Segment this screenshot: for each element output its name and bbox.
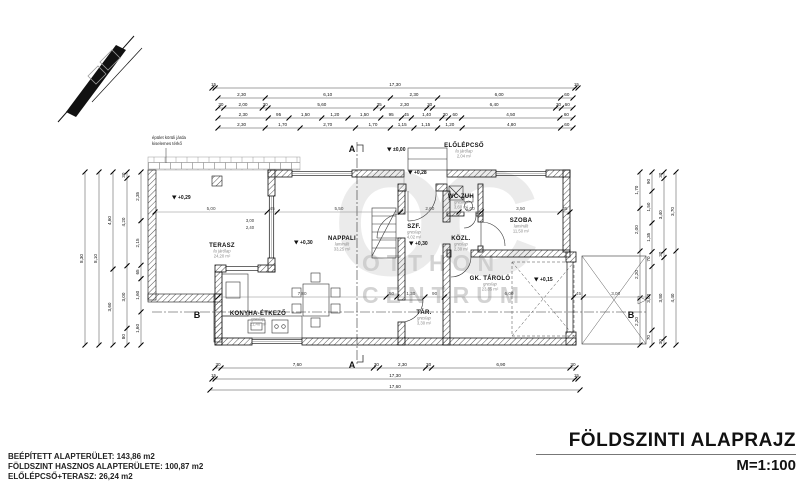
svg-text:30: 30 [374,362,380,367]
svg-text:80: 80 [121,334,126,340]
annotation-1: 2,40 [246,225,255,230]
room-label-3: SZF.greslap4,02 m² [407,224,422,240]
svg-text:1,70: 1,70 [634,185,639,194]
summary-line-1: BEÉPÍTETT ALAPTERÜLET: 143,86 m2 [8,452,203,462]
svg-text:70: 70 [646,335,651,341]
dim-chain-bottom-2: 1517,3015 [210,373,581,381]
dim-chain-inner-1: 5,00455,502,601,003,5045 [153,206,573,214]
svg-text:2,04 m²: 2,04 m² [457,154,472,159]
svg-text:95: 95 [276,112,282,117]
level-marker-3: +0,30 [409,241,428,247]
svg-text:65: 65 [135,269,140,275]
svg-text:4,60: 4,60 [107,216,112,225]
room-label-0: TERASZfa járólap24,20 m² [209,243,235,259]
svg-text:5,60: 5,60 [317,102,326,107]
svg-text:6,00: 6,00 [505,291,514,296]
svg-text:6,10: 6,10 [323,92,332,97]
svg-text:7,60: 7,60 [293,362,302,367]
svg-text:3,60: 3,60 [107,302,112,311]
svg-text:6,40: 6,40 [490,102,499,107]
svg-text:45: 45 [576,291,582,296]
svg-text:1,30: 1,30 [406,291,415,296]
dim-chain-bottom-3: 17,60 [208,384,583,392]
svg-text:8,10: 8,10 [93,254,98,263]
svg-text:+0,15: +0,15 [540,277,553,283]
svg-text:1,50: 1,50 [360,112,369,117]
svg-text:2,20: 2,20 [634,317,639,326]
svg-text:3,00: 3,00 [611,291,620,296]
dining-table [292,273,340,327]
garage-door-x [512,262,574,336]
svg-text:2,30: 2,30 [400,102,409,107]
driveway [582,256,646,344]
drawing-title: FÖLDSZINTI ALAPRAJZ [536,430,796,455]
dim-chain-left-4: 304,203,0080 [121,170,130,348]
section-letter-2: B [194,310,201,320]
svg-text:4,40: 4,40 [670,293,675,302]
svg-text:8,30: 8,30 [79,254,84,263]
level-marker-4: +0,29 [172,195,191,201]
svg-text:17,60: 17,60 [389,384,401,389]
svg-text:3,30 m²: 3,30 m² [417,321,432,326]
svg-text:15: 15 [211,373,217,378]
paving-strip [148,157,300,170]
drawing-scale: M=1:100 [536,457,796,474]
svg-text:70: 70 [646,256,651,262]
dim-chain-top-2: 2,306,102,306,0060 [216,92,576,100]
kitchen-fixtures [222,274,302,338]
svg-text:1,60: 1,60 [135,290,140,299]
svg-text:60: 60 [565,102,571,107]
svg-text:33,25 m²: 33,25 m² [334,247,351,252]
dim-chain-right-1: 1,702,002,202,20 [634,170,643,348]
section-letter-1: A [349,360,356,370]
svg-text:30: 30 [215,362,221,367]
room-label-6: SZOBAlaminált11,50 m² [510,218,533,234]
svg-text:1,60: 1,60 [135,324,140,333]
svg-text:11,50 m²: 11,50 m² [513,229,530,234]
section-letter-3: B [628,310,635,320]
room-label-9: ELŐLÉPCSŐfa járólap2,04 m² [444,141,484,159]
floor-plan-drawing: 1517,30152,306,102,306,0060302,00305,603… [0,0,800,492]
svg-text:+0,29: +0,29 [178,195,191,201]
dim-chain-top-3: 302,00305,60352,30306,403060 [216,102,576,110]
svg-text:kiselemes térkő: kiselemes térkő [152,141,182,146]
svg-text:3,00: 3,00 [121,292,126,301]
svg-text:2,70: 2,70 [323,122,332,127]
svg-text:21,40 m²: 21,40 m² [250,322,267,327]
room-label-1: NAPPALIlaminált33,25 m² [328,236,356,252]
svg-text:2,35: 2,35 [135,191,140,200]
annotation-0: 3,00 [246,218,255,223]
summary-line-2: FÖLDSZINT HASZNOS ALAPTERÜLETE: 100,87 m… [8,462,203,472]
svg-text:90: 90 [646,179,651,185]
level-marker-5: +0,15 [534,277,553,283]
svg-text:2,60: 2,60 [425,206,434,211]
svg-text:30: 30 [443,112,449,117]
svg-text:7,80: 7,80 [298,291,307,296]
svg-text:17,30: 17,30 [389,82,401,87]
svg-text:4,20: 4,20 [121,217,126,226]
dim-chain-left-1: 8,30 [79,170,88,348]
svg-text:2,30: 2,30 [237,122,246,127]
svg-text:30: 30 [426,362,432,367]
level-marker-2: +0,30 [294,240,313,246]
title-block: FÖLDSZINTI ALAPRAJZ M=1:100 [536,430,796,474]
svg-text:1,70: 1,70 [368,122,377,127]
svg-text:3,70: 3,70 [670,207,675,216]
svg-text:2,30: 2,30 [398,362,407,367]
summary-line-3: ELŐLÉPCSŐ+TERASZ: 26,24 m2 [8,472,203,482]
room-label-5: KÖZL.greslap2,30 m² [451,235,471,252]
dim-chain-right-4: 3,704,40 [670,170,679,348]
svg-text:15: 15 [211,82,217,87]
svg-text:1,20: 1,20 [445,122,454,127]
entry-step [408,148,447,170]
svg-text:2,00: 2,00 [634,225,639,234]
section-letter-0: A [349,144,356,154]
svg-text:2,30: 2,30 [237,92,246,97]
svg-text:30: 30 [658,172,663,178]
svg-text:2,30: 2,30 [239,112,248,117]
dim-chain-inner-2: 7,80501,30906,00453,00 [216,291,651,299]
svg-text:+0,30: +0,30 [415,241,428,247]
generated-annotations: 1517,30152,306,102,306,0060302,00305,603… [79,82,679,392]
svg-text:5,00: 5,00 [207,206,216,211]
svg-text:1,40: 1,40 [422,112,431,117]
svg-text:1,15: 1,15 [398,122,407,127]
svg-text:2,15: 2,15 [135,238,140,247]
svg-text:90: 90 [432,291,438,296]
svg-text:17,30: 17,30 [389,373,401,378]
svg-text:3,50: 3,50 [516,206,525,211]
svg-text:45: 45 [562,206,568,211]
svg-text:6,00: 6,00 [495,92,504,97]
svg-text:5,50: 5,50 [334,206,343,211]
svg-text:30: 30 [263,102,269,107]
svg-text:45: 45 [404,112,410,117]
svg-text:30: 30 [570,362,576,367]
svg-text:15: 15 [574,82,580,87]
svg-text:30: 30 [218,102,224,107]
dim-chain-left-2: 8,10 [93,170,102,348]
room-label-7: GK. TÁROLÓgreslap23,85 m² [470,274,511,292]
svg-text:1,35: 1,35 [646,232,651,241]
svg-text:2,20: 2,20 [634,270,639,279]
svg-text:35: 35 [377,102,383,107]
svg-text:30: 30 [427,102,433,107]
svg-text:60: 60 [564,112,570,117]
svg-text:30: 30 [121,172,126,178]
svg-text:2,30 m²: 2,30 m² [454,247,469,252]
svg-text:+0,28: +0,28 [414,170,427,176]
dim-chain-top-1: 1517,3015 [210,82,581,90]
svg-text:95: 95 [389,112,395,117]
svg-text:4,50: 4,50 [506,112,515,117]
room-label-8: TÁR.greslap3,30 m² [416,309,431,326]
svg-text:30: 30 [658,339,663,345]
floor-plan-page: OC OTTHON CENTRUM [0,0,800,492]
dim-chain-left-5: 2,352,15651,601,60 [135,170,144,348]
svg-text:45: 45 [270,206,276,211]
svg-text:1,15: 1,15 [421,122,430,127]
svg-text:1,50: 1,50 [301,112,310,117]
svg-text:6,90: 6,90 [496,362,505,367]
svg-text:+0,30: +0,30 [300,240,313,246]
svg-text:2,30: 2,30 [409,92,418,97]
level-marker-0: ±0,00 [387,147,406,153]
svg-text:±0,00: ±0,00 [393,147,406,153]
svg-text:2,00: 2,00 [239,102,248,107]
dim-chain-left-3: 4,603,60 [107,170,116,348]
svg-text:4,80: 4,80 [507,122,516,127]
level-marker-1: +0,28 [408,170,427,176]
svg-text:1,70: 1,70 [278,122,287,127]
dim-chain-top-4: 2,30951,501,201,5095451,4030604,5060 [216,112,576,120]
svg-text:60: 60 [564,92,570,97]
svg-text:épület körüli járda: épület körüli járda [152,135,187,140]
svg-text:30: 30 [556,102,562,107]
dim-chain-top-5: 2,301,702,701,701,151,151,204,8060 [216,122,576,130]
svg-text:24,20 m²: 24,20 m² [214,254,231,259]
area-summary: BEÉPÍTETT ALAPTERÜLET: 143,86 m2 FÖLDSZI… [8,452,203,482]
svg-text:30: 30 [658,251,663,257]
north-arrow-icon [58,36,142,122]
svg-text:15: 15 [574,373,580,378]
room-label-2: KONYHA-ÉTKEZŐgreslap21,40 m² [230,309,286,327]
svg-text:3,80: 3,80 [658,293,663,302]
dim-chain-right-3: 303,40303,8030 [658,170,667,348]
svg-text:3,40: 3,40 [658,210,663,219]
svg-text:50: 50 [389,291,395,296]
dim-chain-right-2: 901,501,35703,0070 [646,170,655,348]
svg-text:60: 60 [564,122,570,127]
svg-text:1,50: 1,50 [646,202,651,211]
svg-text:1,20: 1,20 [330,112,339,117]
svg-text:60: 60 [452,112,458,117]
dim-chain-bottom-1: 307,60302,30306,9030 [213,362,579,370]
svg-text:23,85 m²: 23,85 m² [482,287,499,292]
svg-text:3,60 m²: 3,60 m² [454,205,469,210]
svg-text:4,02 m²: 4,02 m² [407,235,422,240]
